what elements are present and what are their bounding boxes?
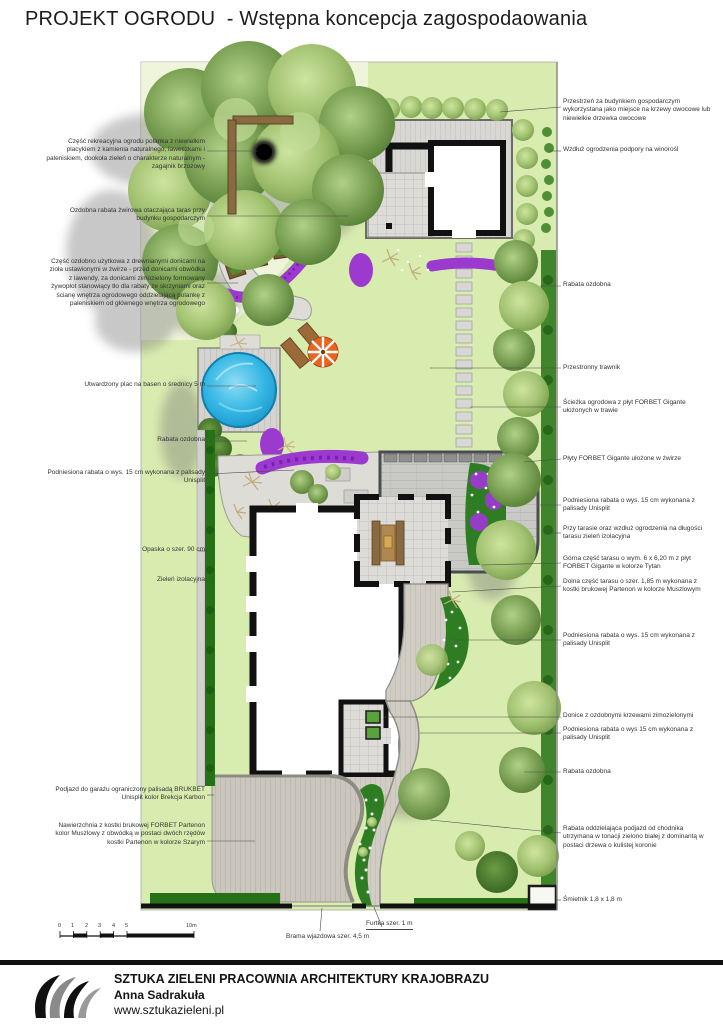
annotation-recreation-area: Część rekreacyjna ogrodu polanka z niewi… [45, 138, 205, 172]
garden-plan-sheet: PROJEKT OGRODU - Wstępna koncepcja zagos… [0, 0, 723, 1024]
annotation-raised-bed-west: Podniesiona rabata o wys. 15 cm wykonana… [45, 469, 205, 486]
annotation-gravel-bed-outbuilding: Ozdobna rabata żwirowa otaczająca taras … [45, 207, 205, 224]
annotation-raised-bed-east: Podniesiona rabata o wys. 15 cm wykonana… [563, 632, 715, 649]
annotation-driveway-paving: Nawierzchnia z kostki brukowej FORBET Pa… [45, 822, 205, 847]
bench [233, 116, 293, 124]
author-name: Anna Sadrakuła [114, 988, 489, 1003]
bench [228, 120, 236, 214]
annotation-driveway-palisade: Podjazd do garażu ograniczony palisadą B… [45, 786, 205, 803]
studio-name: SZTUKA ZIELENI PRACOWNIA ARCHITEKTURY KR… [114, 972, 489, 988]
annotation-gigante-path-grass: Ścieżka ogrodowa z płyt FORBET Gigante u… [563, 399, 715, 416]
planter-box [366, 711, 380, 723]
annotation-raised-bed-terrace: Podniesiona rabata o wys. 15 cm wykonana… [563, 497, 715, 514]
annotation-lawn: Przestronny trawnik [563, 364, 715, 372]
annotation-herb-planter-area: Część ozdobno użytkowa z drewnianymi don… [45, 258, 205, 309]
annotation-pool-plaza: Utwardzony plac na basen o średnicy 5 m [45, 381, 205, 389]
annotation-evergreen-planters: Donice z ozdobnymi krzewami zimozielonym… [563, 712, 715, 720]
annotation-lower-terrace: Dolna część tarasu o szer. 1,85 m wykona… [563, 578, 715, 595]
annotation-ornamental-bed-southeast: Rabata ozdobna [563, 768, 715, 776]
annotation-ornamental-bed-east: Rabata ozdobna [563, 281, 715, 289]
website-url: www.sztukazieleni.pl [114, 1003, 489, 1018]
annotation-fruit-shrubs: Przestrzeń za budynkiem gospodarczym wyk… [563, 98, 715, 123]
annotation-driveway-gate: Brama wjazdowa szer. 4,5 m [286, 933, 369, 941]
entrance-courtyard [341, 702, 391, 775]
footer: SZTUKA ZIELENI PRACOWNIA ARCHITEKTURY KR… [30, 972, 489, 1020]
annotation-isolation-green-west: Zieleń izolacyjna [45, 576, 205, 584]
umbrella-icon [308, 337, 338, 367]
annotation-opaska: Opaska o szer. 90 cm [45, 546, 205, 554]
annotation-garden-gate: Furtka szer. 1 m [366, 920, 413, 930]
annotation-trash-enclosure: Śmietnik 1,8 x 1,8 m [563, 896, 715, 904]
round-crown-tree [476, 851, 518, 893]
veranda [357, 497, 448, 584]
annotation-driveway-separation-bed: Rabata oddzielająca podjazd od chodnika … [563, 825, 715, 850]
footer-divider [0, 960, 723, 965]
annotation-isolation-green-terrace: Przy tarasie oraz wzdłuż ogrodzenia na d… [563, 525, 715, 542]
studio-logo-leaf-icon [30, 972, 104, 1020]
garden-table [372, 521, 404, 565]
scale-bar [60, 931, 194, 938]
annotation-gigante-plates-gravel: Płyty FORBET Gigante ułożone w żwirze [563, 455, 715, 463]
pool [202, 353, 276, 427]
annotation-upper-terrace: Górna część tarasu o wym. 6 x 6,20 m z p… [563, 555, 715, 572]
annotation-vine-supports: Wzdłuż ogrodzenia podpory na winorośl [563, 146, 715, 154]
planter-box [366, 727, 380, 739]
annotation-ornamental-bed-west: Rabata ozdobna [45, 436, 205, 444]
annotation-raised-bed-entrance: Podniesiona rabata o wys 15 cm wykonana … [563, 726, 715, 743]
